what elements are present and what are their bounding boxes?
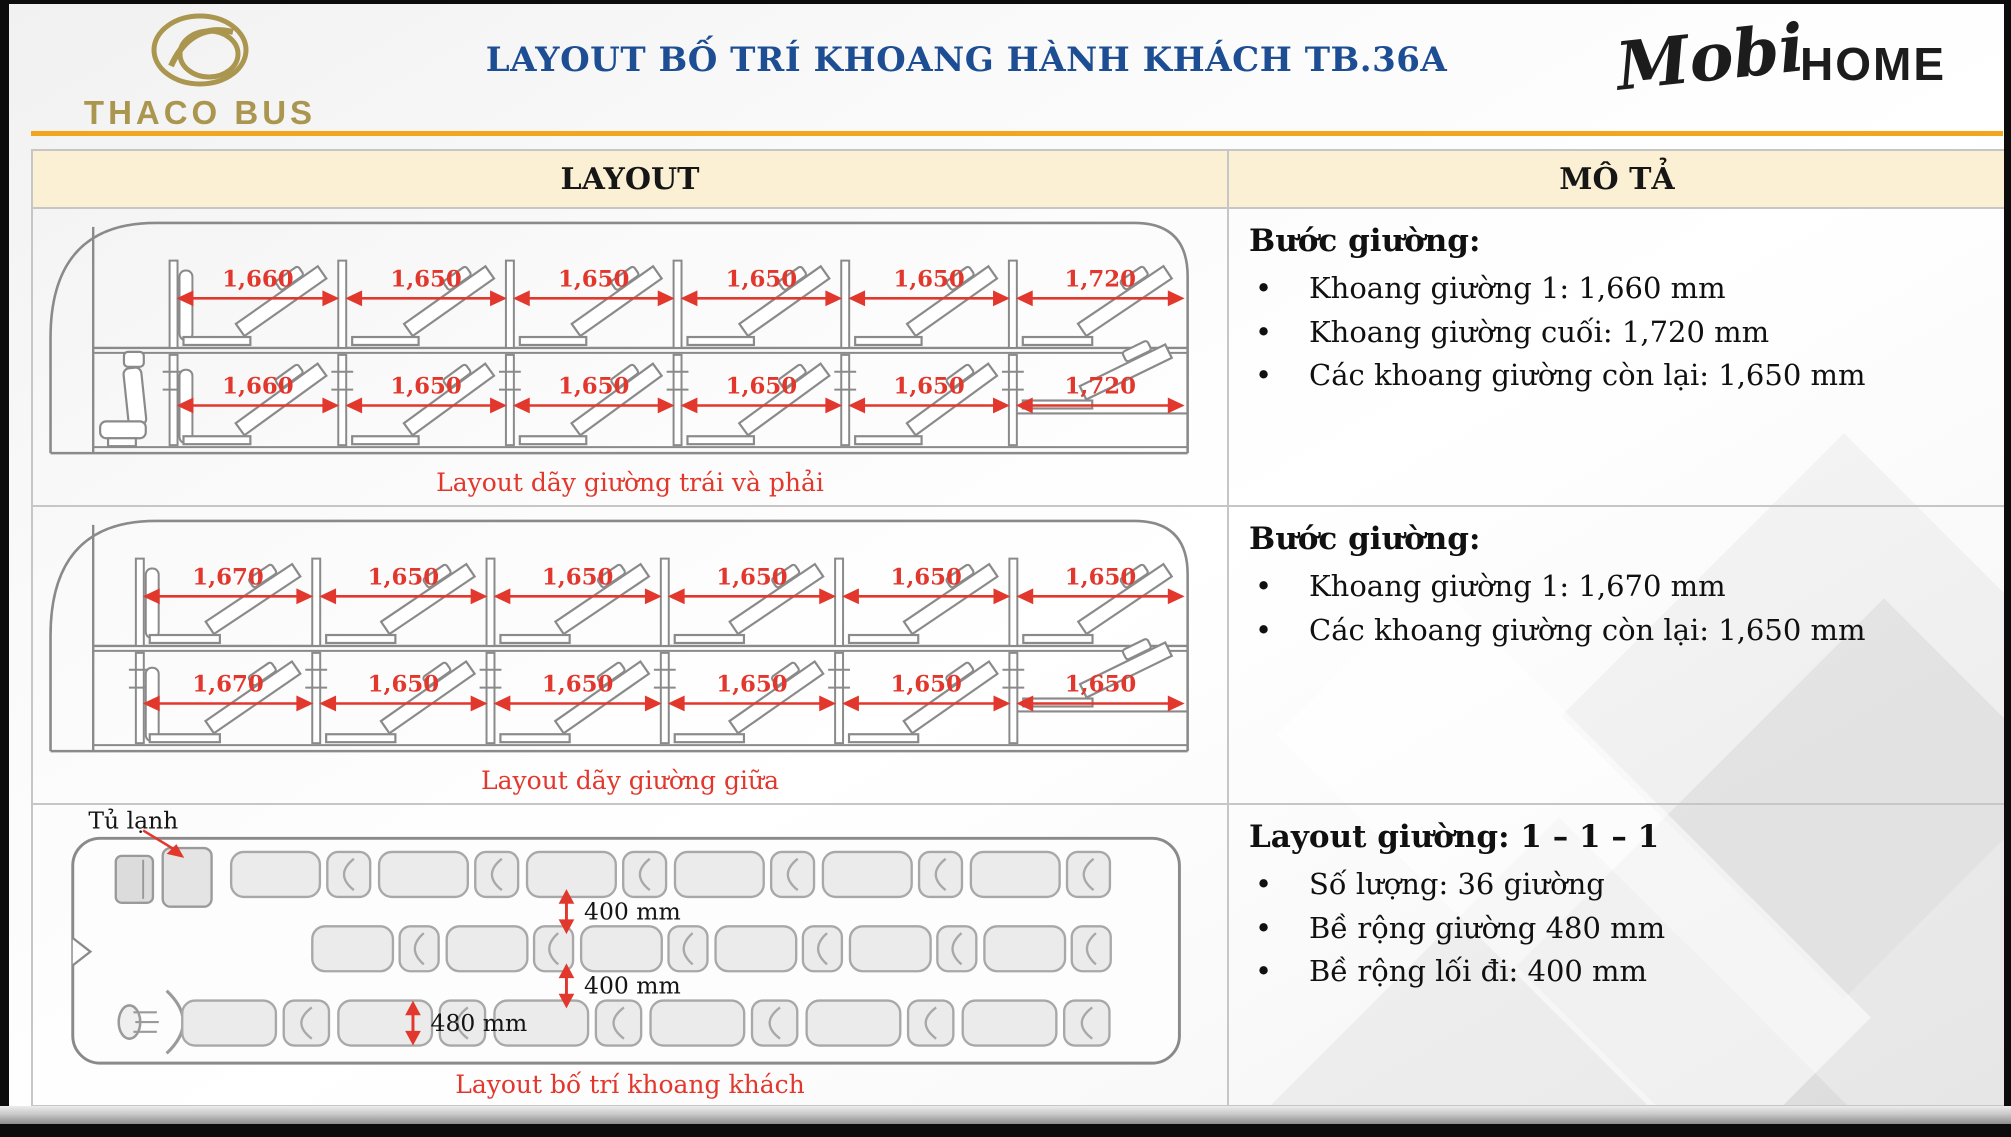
column-header-layout: LAYOUT bbox=[33, 151, 1229, 209]
gold-divider bbox=[31, 131, 2003, 136]
svg-text:1,650: 1,650 bbox=[542, 564, 613, 590]
description-bullets: •Khoang giường 1: 1,670 mm•Các khoang gi… bbox=[1249, 565, 1995, 652]
svg-text:1,650: 1,650 bbox=[893, 266, 964, 292]
bullet-item: •Các khoang giường còn lại: 1,650 mm bbox=[1249, 354, 1995, 398]
column-header-mota: MÔ TẢ bbox=[1229, 151, 2004, 209]
svg-text:480 mm: 480 mm bbox=[431, 1009, 528, 1037]
bullet-item: •Số lượng: 36 giường bbox=[1249, 863, 1995, 907]
description-cell-3: Layout giường: 1 – 1 – 1 •Số lượng: 36 g… bbox=[1229, 805, 2004, 1105]
svg-text:1,650: 1,650 bbox=[558, 266, 629, 292]
mobihome-logo: Mobi HOME bbox=[1616, 18, 1946, 96]
bullet-item: •Khoang giường 1: 1,660 mm bbox=[1249, 267, 1995, 311]
bullet-item: •Các khoang giường còn lại: 1,650 mm bbox=[1249, 609, 1995, 653]
mobihome-block: HOME bbox=[1800, 37, 1946, 91]
svg-text:1,660: 1,660 bbox=[222, 266, 293, 292]
svg-text:1,660: 1,660 bbox=[222, 374, 293, 400]
bus-side-view-diagram-1: 1,6601,6601,6501,6501,6501,6501,6501,650… bbox=[35, 211, 1225, 467]
svg-text:1,650: 1,650 bbox=[893, 374, 964, 400]
svg-text:1,650: 1,650 bbox=[1065, 564, 1136, 590]
diagram-caption: Layout dãy giường trái và phải bbox=[436, 467, 824, 499]
svg-text:1,670: 1,670 bbox=[192, 564, 263, 590]
svg-text:1,650: 1,650 bbox=[390, 266, 461, 292]
page-title: LAYOUT BỐ TRÍ KHOANG HÀNH KHÁCH TB.36A bbox=[309, 40, 1624, 80]
svg-text:1,650: 1,650 bbox=[368, 564, 439, 590]
svg-text:1,650: 1,650 bbox=[716, 564, 787, 590]
svg-text:400 mm: 400 mm bbox=[584, 972, 681, 1000]
svg-text:400 mm: 400 mm bbox=[584, 897, 681, 925]
svg-text:1,720: 1,720 bbox=[1065, 374, 1136, 400]
svg-text:1,650: 1,650 bbox=[1065, 672, 1136, 698]
bullet-item: •Khoang giường 1: 1,670 mm bbox=[1249, 565, 1995, 609]
svg-text:1,650: 1,650 bbox=[368, 672, 439, 698]
mobihome-script: Mobi bbox=[1612, 8, 1807, 105]
thaco-logo: THACO BUS bbox=[55, 8, 345, 132]
description-title: Bước giường: bbox=[1249, 521, 1995, 557]
description-title: Bước giường: bbox=[1249, 223, 1995, 259]
thaco-emblem-icon bbox=[141, 8, 259, 92]
svg-text:1,650: 1,650 bbox=[726, 266, 797, 292]
diagram-cell-side-middle: 1,6701,6701,6501,6501,6501,6501,6501,650… bbox=[33, 507, 1229, 805]
bullet-item: •Bề rộng giường 480 mm bbox=[1249, 907, 1995, 951]
description-bullets: •Số lượng: 36 giường•Bề rộng giường 480 … bbox=[1249, 863, 1995, 994]
bullet-item: •Khoang giường cuối: 1,720 mm bbox=[1249, 311, 1995, 355]
brand-name: THACO BUS bbox=[55, 94, 345, 132]
svg-text:1,650: 1,650 bbox=[890, 564, 961, 590]
svg-text:1,650: 1,650 bbox=[716, 672, 787, 698]
diagram-caption: Layout dãy giường giữa bbox=[481, 765, 779, 797]
svg-text:1,720: 1,720 bbox=[1065, 266, 1136, 292]
bullet-item: •Bề rộng lối đi: 400 mm bbox=[1249, 950, 1995, 994]
svg-text:1,650: 1,650 bbox=[558, 374, 629, 400]
diagram-caption: Layout bố trí khoang khách bbox=[455, 1069, 804, 1101]
description-title: Layout giường: 1 – 1 – 1 bbox=[1249, 819, 1995, 855]
bus-top-view-diagram: Tủ lạnh400 mm400 mm480 mm bbox=[35, 807, 1225, 1069]
svg-text:1,650: 1,650 bbox=[726, 374, 797, 400]
svg-text:Tủ lạnh: Tủ lạnh bbox=[88, 807, 178, 835]
diagram-cell-top-view: Tủ lạnh400 mm400 mm480 mm Layout bố trí … bbox=[33, 805, 1229, 1105]
description-bullets: •Khoang giường 1: 1,660 mm•Khoang giường… bbox=[1249, 267, 1995, 398]
bottom-gradient-strip bbox=[0, 1106, 2011, 1124]
description-cell-1: Bước giường: •Khoang giường 1: 1,660 mm•… bbox=[1229, 209, 2004, 507]
diagram-cell-side-left-right: 1,6601,6601,6501,6501,6501,6501,6501,650… bbox=[33, 209, 1229, 507]
layout-table: LAYOUT MÔ TẢ 1,6601,6601,6501,6501,6501,… bbox=[31, 149, 2004, 1106]
svg-text:1,650: 1,650 bbox=[890, 672, 961, 698]
slide: THACO BUS LAYOUT BỐ TRÍ KHOANG HÀNH KHÁC… bbox=[9, 4, 2004, 1106]
description-cell-2: Bước giường: •Khoang giường 1: 1,670 mm•… bbox=[1229, 507, 2004, 805]
svg-text:1,650: 1,650 bbox=[542, 672, 613, 698]
bus-side-view-diagram-2: 1,6701,6701,6501,6501,6501,6501,6501,650… bbox=[35, 509, 1225, 765]
svg-text:1,670: 1,670 bbox=[192, 672, 263, 698]
svg-text:1,650: 1,650 bbox=[390, 374, 461, 400]
